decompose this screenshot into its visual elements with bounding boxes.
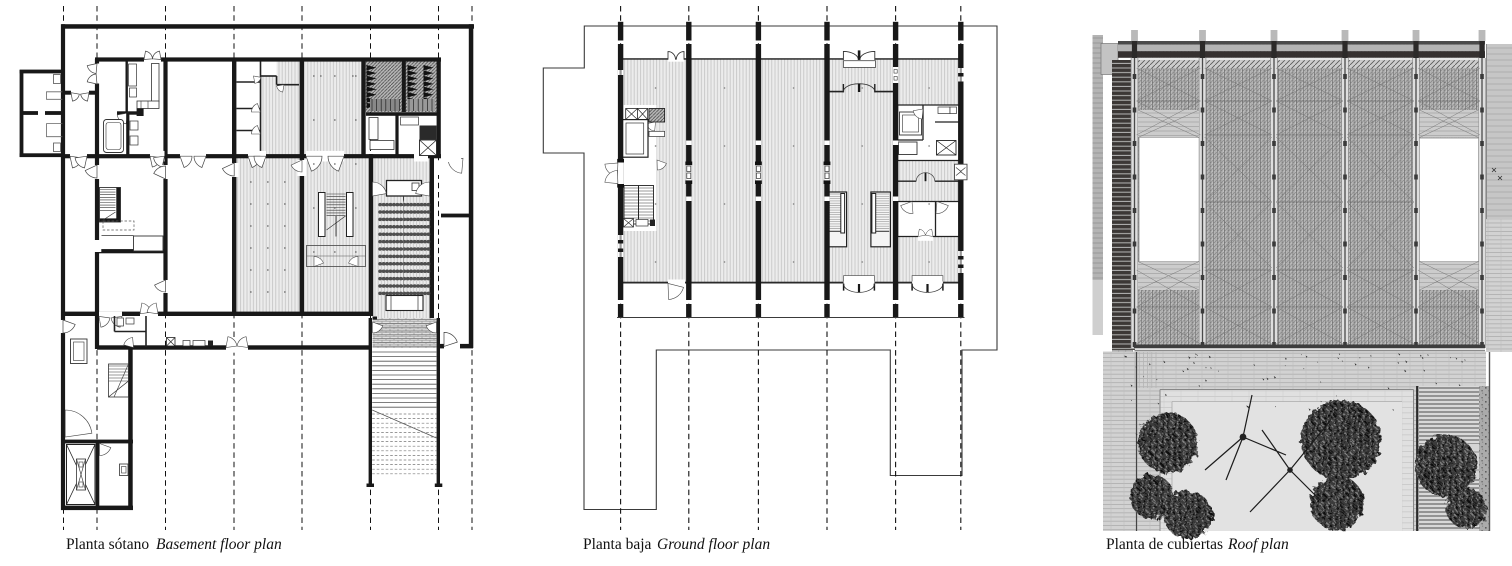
- svg-text:Planta de cubiertas: Planta de cubiertas: [1106, 536, 1223, 553]
- svg-text:Planta baja: Planta baja: [583, 536, 652, 553]
- svg-text:Basement floor plan: Basement floor plan: [156, 536, 282, 553]
- svg-text:Roof plan: Roof plan: [1227, 536, 1289, 553]
- svg-text:Ground floor plan: Ground floor plan: [657, 536, 770, 553]
- svg-text:Planta sótano: Planta sótano: [66, 536, 149, 553]
